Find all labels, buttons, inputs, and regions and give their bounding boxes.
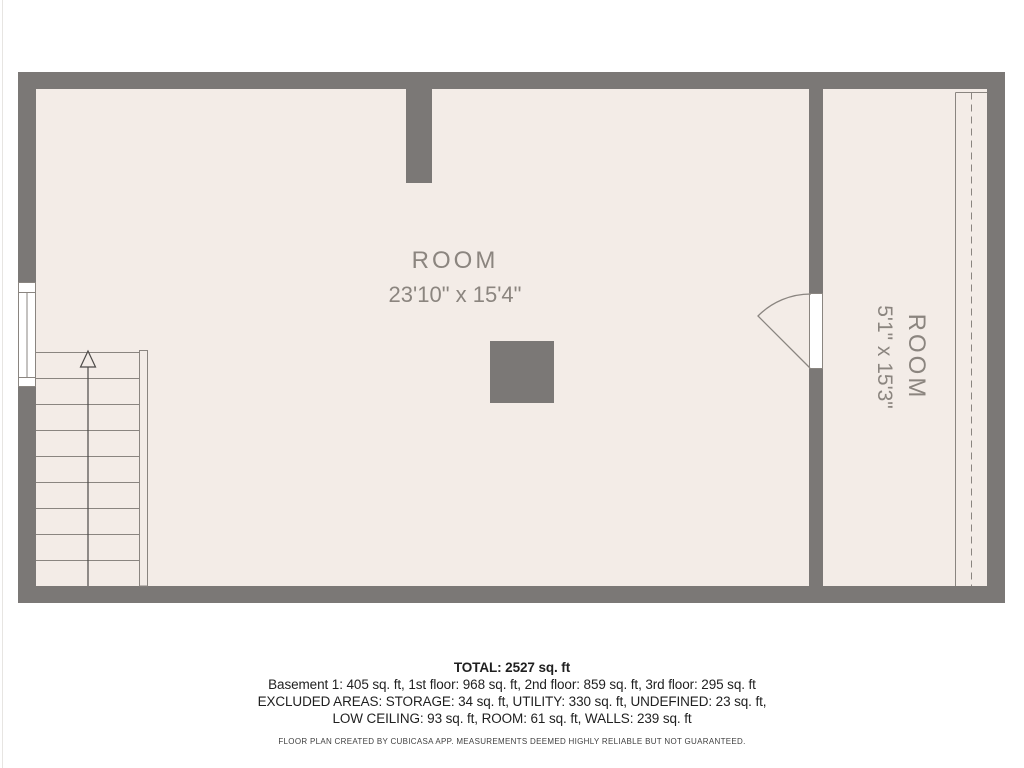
main-room-dimensions: 23'10" x 15'4" <box>389 281 522 309</box>
wall-right <box>987 72 1005 603</box>
floor-areas-text: Basement 1: 405 sq. ft, 1st floor: 968 s… <box>0 676 1024 693</box>
wall-stub <box>406 89 432 183</box>
wall-bottom <box>18 586 1005 603</box>
excluded-areas-text-line1: EXCLUDED AREAS: STORAGE: 34 sq. ft, UTIL… <box>0 693 1024 710</box>
side-room-label: ROOM 5'1" x 15'3" <box>871 305 931 409</box>
side-room-name: ROOM <box>901 305 931 409</box>
wall-left-upper <box>18 72 36 282</box>
floor-area <box>18 72 1005 603</box>
side-room-dimensions: 5'1" x 15'3" <box>871 305 897 409</box>
main-room-label: ROOM 23'10" x 15'4" <box>389 246 522 309</box>
area-summary: TOTAL: 2527 sq. ft Basement 1: 405 sq. f… <box>0 659 1024 747</box>
window <box>19 283 36 387</box>
wall-divider-lower <box>809 369 823 586</box>
wall-top <box>18 72 1005 89</box>
column-pillar <box>490 341 554 403</box>
wall-divider-upper <box>809 89 823 293</box>
total-area-text: TOTAL: 2527 sq. ft <box>0 659 1024 676</box>
floor-plan-page: ROOM 23'10" x 15'4" ROOM 5'1" x 15'3" TO… <box>0 0 1024 768</box>
excluded-areas-text-line2: LOW CEILING: 93 sq. ft, ROOM: 61 sq. ft,… <box>0 710 1024 727</box>
disclaimer-text: FLOOR PLAN CREATED BY CUBICASA APP. MEAS… <box>0 737 1024 747</box>
wall-left-lower <box>18 387 36 603</box>
main-room-name: ROOM <box>389 246 522 276</box>
door-opening <box>810 294 823 369</box>
